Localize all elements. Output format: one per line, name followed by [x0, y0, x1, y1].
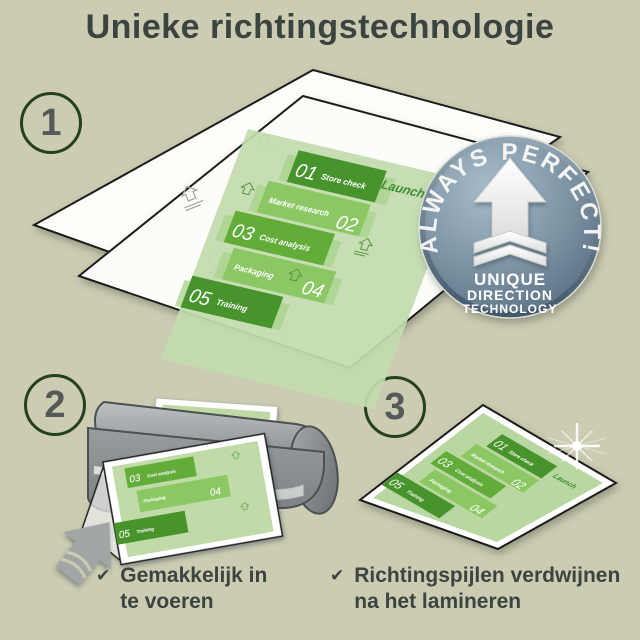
checklist-2-line-1: Richtingspijlen verdwijnen: [354, 564, 620, 587]
checkmark-icon: ✔: [96, 563, 110, 589]
badge-line-3: TECHNOLOGY: [463, 302, 558, 316]
checklist-1-line-2: te voeren: [120, 590, 213, 613]
badge-line-2: DIRECTION: [467, 287, 553, 303]
illustration-canvas: 01 Store check Market research 02 03 Cos…: [0, 0, 640, 640]
scene-3-result: 01 Store check Market research 02 03 Cos…: [360, 405, 616, 551]
checklist-2-line-2: na het lamineren: [354, 590, 521, 613]
product-feature-graphic: Unieke richtingstechnologie 1 2 3: [0, 0, 640, 640]
checkmark-icon: ✔: [330, 563, 344, 589]
checklist-1-line-1: Gemakkelijk in: [120, 564, 267, 587]
checklist-item-easy-feed: ✔ Gemakkelijk in te voeren: [96, 563, 267, 615]
checklist-item-arrows-disappear: ✔ Richtingspijlen verdwijnen na het lami…: [330, 563, 620, 615]
